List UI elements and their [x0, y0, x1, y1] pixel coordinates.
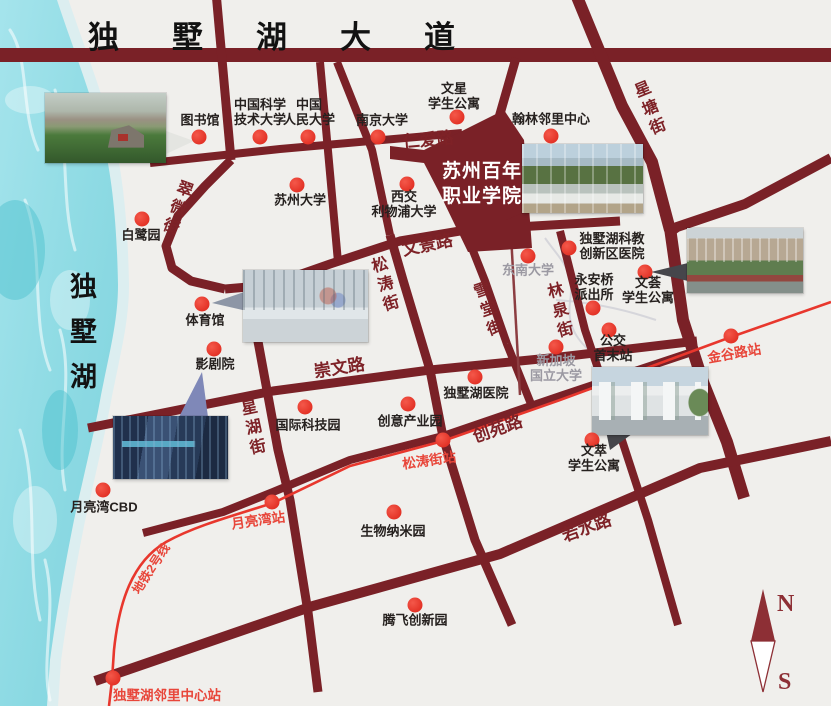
- poi-dot-东南大学: [521, 249, 536, 264]
- poi-label-独墅湖医院: 独墅湖医院: [443, 387, 508, 402]
- photo-student-apartments: [687, 228, 803, 293]
- poi-label-月亮湾CBD: 月亮湾CBD: [70, 501, 137, 516]
- poi-dot-体育馆: [195, 297, 210, 312]
- poi-dot-腾飞创新园: [408, 598, 423, 613]
- road-campus-street-west: [320, 62, 338, 262]
- poi-label-南京大学: 南京大学: [356, 114, 408, 129]
- poi-label-公交首末站: 公交 首末站: [593, 334, 632, 364]
- poi-label-中国人民大学: 中国 人民大学: [283, 98, 335, 128]
- photo-d-callout-tail: [212, 291, 247, 311]
- poi-label-体育馆: 体育馆: [185, 314, 224, 329]
- poi-dot-苏州大学: [290, 178, 305, 193]
- compass-north-needle: [751, 589, 775, 641]
- poi-dot-南京大学: [371, 130, 386, 145]
- compass-south-letter: S: [778, 669, 791, 695]
- poi-label-独墅湖科教创新区医院: 独墅湖科教 创新区医院: [579, 232, 644, 262]
- poi-label-白鹭园: 白鹭园: [121, 229, 160, 244]
- photo-lake-campus: [45, 93, 166, 163]
- poi-label-翰林邻里中心: 翰林邻里中心: [512, 113, 590, 128]
- poi-dot-中国科学技术大学: [253, 130, 268, 145]
- station-label-独墅湖邻里中心站: 独墅湖邻里中心站: [113, 684, 221, 704]
- poi-label-苏州大学: 苏州大学: [274, 194, 326, 209]
- poi-dot-创意产业园: [401, 397, 416, 412]
- poi-label-影剧院: 影剧院: [195, 358, 234, 373]
- poi-dot-生物纳米园: [387, 505, 402, 520]
- lake-label-dushu-lake: 独墅湖: [62, 272, 101, 407]
- college-name-label: 苏州百年 职业学院: [424, 160, 540, 209]
- poi-dot-图书馆: [192, 130, 207, 145]
- poi-label-腾飞创新园: 腾飞创新园: [382, 614, 447, 629]
- poi-label-生物纳米园: 生物纳米园: [360, 525, 425, 540]
- photo-campus-gate: [592, 367, 708, 435]
- poi-label-文荟学生公寓: 文荟 学生公寓: [622, 276, 674, 306]
- poi-dot-影剧院: [207, 342, 222, 357]
- poi-dot-中国人民大学: [301, 130, 316, 145]
- poi-dot-独墅湖科教创新区医院: [562, 241, 577, 256]
- road-label-仁爱路: 仁爱路: [402, 123, 455, 152]
- poi-dot-独墅湖医院: [468, 370, 483, 385]
- poi-label-创意产业园: 创意产业园: [377, 415, 442, 430]
- photo-gymnasium: [243, 270, 368, 342]
- photo-a-callout-tail: [166, 131, 194, 154]
- compass-north-letter: N: [777, 591, 795, 617]
- poi-label-文星学生公寓: 文星 学生公寓: [428, 82, 480, 112]
- poi-label-新加坡国立大学: 新加坡 国立大学: [530, 354, 582, 384]
- poi-label-永安桥派出所: 永安桥 派出所: [574, 273, 613, 303]
- road-label-dushuhu-avenue: 独墅湖大道: [88, 12, 508, 57]
- poi-label-中国科学技术大学: 中国科学 技术大学: [234, 98, 286, 128]
- poi-label-文萃学生公寓: 文萃 学生公寓: [568, 444, 620, 474]
- compass-south-needle: [751, 641, 775, 692]
- poi-label-图书馆: 图书馆: [180, 114, 219, 129]
- poi-label-东南大学: 东南大学: [502, 264, 554, 279]
- lake-light-patch: [13, 486, 57, 554]
- poi-label-国际科技园: 国际科技园: [275, 419, 340, 434]
- road-wenjing-road-east: [670, 158, 831, 232]
- poi-dot-翰林邻里中心: [544, 129, 559, 144]
- photo-moon-bay-cbd: [113, 416, 228, 479]
- photo-college-campus: [522, 144, 643, 213]
- poi-label-西交利物浦大学: 西交 利物浦大学: [371, 190, 436, 220]
- photo-e-callout-tail: [179, 372, 208, 417]
- campus-area-map: NS 独墅湖大道 独墅湖 苏州百年 职业学院 仁爱路文景路崇文路创苑路若水路翠微…: [0, 0, 831, 706]
- poi-dot-月亮湾CBD: [96, 483, 111, 498]
- poi-dot-国际科技园: [298, 400, 313, 415]
- poi-dot-白鹭园: [135, 212, 150, 227]
